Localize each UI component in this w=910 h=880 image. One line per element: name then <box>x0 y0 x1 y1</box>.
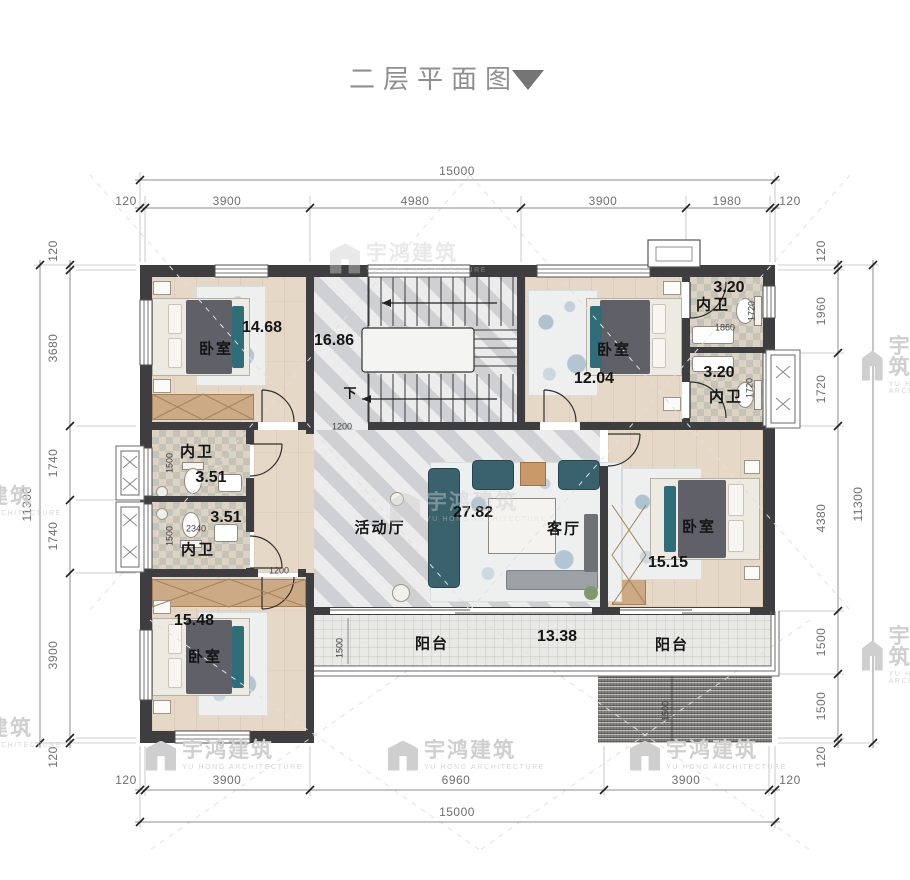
area-bedroom-right: 15.15 <box>648 555 688 571</box>
wall-row2-south-a <box>517 422 540 430</box>
wall-right <box>763 265 775 611</box>
wall-stair-east <box>517 265 525 430</box>
yuhong-logo-icon <box>146 741 176 771</box>
pillow <box>728 520 744 552</box>
dim-bottom-seg: 6960 <box>442 774 471 786</box>
wall-tl-south-stub <box>298 422 306 430</box>
dim-roof-depth: 1500 <box>662 701 671 721</box>
dim-top-seg: 4980 <box>401 195 430 207</box>
blanket <box>186 300 232 374</box>
dim-bottom-total: 15000 <box>439 806 475 818</box>
room-label-bedroom-bl: 卧室 <box>188 650 222 665</box>
room-label-bath-tr-bottom: 内卫 <box>709 390 743 405</box>
dim-right-seg: 1500 <box>815 692 827 721</box>
bed-runner <box>664 486 676 552</box>
dim-bottom-seg: 3900 <box>213 774 242 786</box>
watermark: 宇鸿建筑YU HONG ARCHITECTURE <box>146 740 303 771</box>
watermark-en: YU HONG ARCHITECTURE <box>182 764 303 771</box>
roof-hatch-area <box>598 676 772 743</box>
bench <box>506 570 598 590</box>
nightstand <box>153 700 171 714</box>
dim-door-opening: 1200 <box>269 567 289 576</box>
wall-bathtr-west-c <box>682 418 690 430</box>
sofa-chaise <box>428 468 460 588</box>
wall-hall-south <box>314 607 604 615</box>
wall-bathl-east-b <box>246 478 254 532</box>
dim-left-seg: 3900 <box>47 641 59 670</box>
wall-top <box>140 265 775 277</box>
dim-left-seg: 3680 <box>47 334 59 363</box>
area-bath-tr-bottom: 3.20 <box>703 365 734 381</box>
dim-bath-tr-bottom-h: 1720 <box>746 378 755 398</box>
area-balcony: 13.38 <box>537 629 577 645</box>
wall-bathtr-west-a <box>682 265 690 282</box>
floor-plan-canvas: 二层平面图 <box>0 0 910 880</box>
nightstand <box>153 600 171 614</box>
wardrobe <box>152 579 306 607</box>
watermark: 宇鸿建筑YU HONG ARCHITECTURE <box>388 740 545 771</box>
dim-balcony-depth: 1500 <box>336 638 345 658</box>
pillow <box>728 484 744 516</box>
dim-right-seg: 120 <box>815 746 827 768</box>
nightstand <box>153 281 171 295</box>
sink <box>214 524 238 542</box>
area-bath-left-top: 3.51 <box>195 470 226 486</box>
dim-stair-opening: 1200 <box>332 423 352 432</box>
yuhong-logo-icon <box>862 641 883 671</box>
room-label-bath-tr-top: 内卫 <box>696 298 730 313</box>
wardrobe <box>152 394 254 420</box>
nightstand <box>663 281 681 295</box>
floor-stair-hall <box>314 277 517 430</box>
dim-bottom-seg: 3900 <box>672 774 701 786</box>
wall-tl-east <box>306 265 314 434</box>
dim-top-total: 15000 <box>439 165 475 177</box>
nightstand <box>153 379 171 393</box>
blanket <box>600 300 650 374</box>
dim-bath-left-bottom-h: 1500 <box>166 526 175 546</box>
plant <box>584 586 598 600</box>
room-label-activity-hall: 活动厅 <box>354 521 405 536</box>
room-label-balcony-left: 阳台 <box>415 637 449 652</box>
dim-right-seg: 120 <box>815 240 827 262</box>
dim-top-seg: 120 <box>779 195 801 207</box>
dim-top-seg: 1980 <box>713 195 742 207</box>
wall-hall-bedroom-right <box>600 466 608 607</box>
bed-runner <box>232 306 244 368</box>
toilet-tank <box>754 380 762 410</box>
area-stair-hall: 16.86 <box>314 333 354 349</box>
wall-bedroom-right-south <box>604 607 775 615</box>
dim-left-seg: 1740 <box>47 449 59 478</box>
wall-row2-south-b <box>580 422 775 430</box>
dim-bottom-seg: 120 <box>115 774 137 786</box>
dim-bath-left-bottom-w: 2340 <box>186 525 206 534</box>
pillow <box>168 338 182 368</box>
wall-bl-north <box>140 569 258 577</box>
wall-bl-east <box>306 573 314 743</box>
area-bedroom-tr: 12.04 <box>574 371 614 387</box>
wall-bottom-bl <box>140 731 310 743</box>
triangle-down-icon <box>512 70 544 90</box>
page-title: 二层平面图 <box>349 66 519 92</box>
dim-right-seg: 1960 <box>815 297 827 326</box>
coffee-table <box>488 498 556 554</box>
side-table <box>520 462 546 486</box>
wall-tl-south <box>140 422 258 430</box>
watermark: 宇鸿建筑YU HONG ARCHITECTURE <box>862 626 910 685</box>
room-label-bath-left-bottom: 内卫 <box>181 543 215 558</box>
wall-bathl-east-a <box>246 430 254 444</box>
area-activity-hall: 27.82 <box>453 505 493 521</box>
nightstand <box>744 460 760 474</box>
dim-top-seg: 3900 <box>213 195 242 207</box>
room-label-balcony-right: 阳台 <box>655 638 689 653</box>
room-label-bedroom-tr: 卧室 <box>597 343 631 358</box>
wall-bl-north-stub <box>298 569 306 577</box>
stool <box>390 492 404 506</box>
watermark: 宇鸿建筑YU HONG ARCHITECTURE <box>630 740 787 771</box>
area-bath-tr-top: 3.20 <box>713 280 744 296</box>
room-label-bath-left-top: 内卫 <box>180 445 214 460</box>
room-label-bedroom-tl: 卧室 <box>199 342 233 357</box>
pillow <box>168 658 182 688</box>
pillow <box>168 304 182 334</box>
dim-left-seg: 120 <box>47 746 59 768</box>
dim-right-seg: 1500 <box>815 628 827 657</box>
dim-bottom-seg: 120 <box>779 774 801 786</box>
floor-drain <box>156 508 168 520</box>
yuhong-logo-icon <box>630 741 660 771</box>
area-bedroom-bl: 15.48 <box>174 613 214 629</box>
dim-left-total: 11300 <box>21 487 33 522</box>
wall-bathtr-separator <box>686 347 763 353</box>
dim-left-seg: 120 <box>47 240 59 262</box>
dim-left-seg: 1740 <box>47 522 59 551</box>
pillow <box>652 338 666 368</box>
stool <box>392 584 410 602</box>
armchair <box>472 460 514 490</box>
dim-top-seg: 3900 <box>589 195 618 207</box>
room-label-living-room: 客厅 <box>547 522 581 537</box>
dim-bath-tr-top-h: 1720 <box>748 301 757 321</box>
floor-corridor <box>254 430 314 573</box>
dim-bath-tr-top-w: 1860 <box>715 324 735 333</box>
wall-stair-south <box>368 422 521 430</box>
watermark: 宇鸿建筑YU HONG ARCHITECTURE <box>862 336 910 395</box>
wall-left <box>140 265 152 743</box>
yuhong-logo-icon <box>388 741 418 771</box>
tv-cabinet <box>584 514 598 572</box>
room-label-bedroom-right: 卧室 <box>682 520 716 535</box>
dim-top-seg: 120 <box>115 195 137 207</box>
dim-right-seg: 4380 <box>815 504 827 533</box>
yuhong-logo-icon <box>862 351 883 381</box>
nightstand <box>744 566 760 580</box>
bed-runner <box>590 306 602 368</box>
armchair <box>558 460 600 490</box>
bed-runner <box>232 626 244 688</box>
pillow <box>652 304 666 334</box>
flue-box <box>648 240 700 267</box>
dim-right-seg: 1720 <box>815 375 827 404</box>
area-bath-left-bottom: 3.51 <box>210 510 241 526</box>
dim-right-total: 11300 <box>852 487 864 522</box>
stair-down-label: 下 <box>343 387 356 400</box>
dim-bath-left-top-h: 1500 <box>166 453 175 473</box>
area-bedroom-tl: 14.68 <box>242 320 282 336</box>
watermark-cn: 宇鸿建筑 <box>182 740 303 761</box>
wall-bathl-separator <box>152 496 250 502</box>
watermark: 宇鸿建筑YU HONG ARCHITECTURE <box>0 718 62 749</box>
nightstand <box>663 397 681 411</box>
